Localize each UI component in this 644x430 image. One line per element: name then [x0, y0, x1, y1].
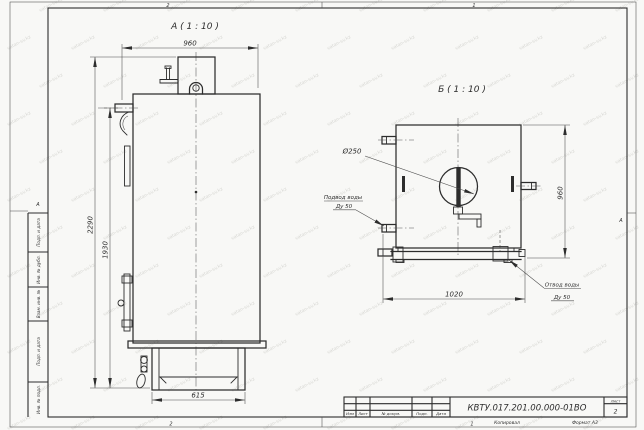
drawing-sheet: vatan-sv.kzvatan-sv.kzvatan-sv.kzvatan-s… [0, 0, 644, 430]
tb-col-podp: Подп. [416, 411, 428, 416]
svg-text:vatan-sv.kz: vatan-sv.kz [422, 224, 448, 242]
svg-text:vatan-sv.kz: vatan-sv.kz [486, 376, 512, 394]
svg-text:vatan-sv.kz: vatan-sv.kz [454, 262, 480, 280]
water-outlet-stub [493, 247, 508, 262]
svg-text:vatan-sv.kz: vatan-sv.kz [294, 148, 320, 166]
svg-text:Ду 50: Ду 50 [553, 295, 571, 301]
damper-handle [454, 207, 482, 227]
zone-letter-left: А [35, 202, 40, 208]
svg-text:vatan-sv.kz: vatan-sv.kz [70, 110, 96, 128]
svg-text:vatan-sv.kz: vatan-sv.kz [70, 338, 96, 356]
dim-a-base-width: 615 [152, 392, 245, 405]
svg-text:Подвод воды: Подвод воды [324, 195, 363, 201]
svg-text:vatan-sv.kz: vatan-sv.kz [230, 300, 256, 318]
svg-text:vatan-sv.kz: vatan-sv.kz [518, 34, 544, 52]
svg-text:vatan-sv.kz: vatan-sv.kz [550, 224, 576, 242]
view-b-label: Б ( 1 : 10 ) [438, 85, 486, 95]
dim-a-body-height: 1930 [101, 108, 118, 388]
inlet-callout: Подвод воды Ду 50 [324, 195, 384, 226]
svg-text:vatan-sv.kz: vatan-sv.kz [102, 72, 128, 90]
tb-sheet-label: Лист [610, 398, 621, 403]
svg-text:vatan-sv.kz: vatan-sv.kz [358, 224, 384, 242]
zone-number-top-left: 2 [166, 3, 169, 9]
copied-label: Копировал [494, 420, 520, 426]
side-cell-vzam-inv: Взам. инв. № [36, 289, 41, 318]
svg-text:vatan-sv.kz: vatan-sv.kz [102, 300, 128, 318]
svg-text:vatan-sv.kz: vatan-sv.kz [326, 262, 352, 280]
view-a-label: А ( 1 : 10 ) [170, 22, 219, 32]
side-cell-inv-podl: Инв. № подл. [36, 385, 41, 414]
tb-col-data: Дата [435, 411, 447, 416]
svg-text:vatan-sv.kz: vatan-sv.kz [166, 72, 192, 90]
svg-text:vatan-sv.kz: vatan-sv.kz [262, 262, 288, 280]
svg-text:vatan-sv.kz: vatan-sv.kz [230, 224, 256, 242]
svg-text:vatan-sv.kz: vatan-sv.kz [134, 414, 160, 430]
dim-a-overall-height: 2290 [87, 57, 177, 388]
svg-text:vatan-sv.kz: vatan-sv.kz [70, 34, 96, 52]
svg-text:vatan-sv.kz: vatan-sv.kz [70, 414, 96, 430]
svg-text:vatan-sv.kz: vatan-sv.kz [422, 300, 448, 318]
svg-text:vatan-sv.kz: vatan-sv.kz [262, 110, 288, 128]
svg-text:vatan-sv.kz: vatan-sv.kz [582, 110, 608, 128]
tb-col-list: Лист [357, 411, 368, 416]
document-number: КВТУ.017.201.00.000-01ВО [468, 404, 587, 414]
zone-number-bottom-left: 2 [169, 422, 172, 428]
svg-text:vatan-sv.kz: vatan-sv.kz [486, 300, 512, 318]
svg-text:vatan-sv.kz: vatan-sv.kz [486, 224, 512, 242]
flue-diameter-callout: Ø250 [342, 148, 474, 195]
svg-text:Ду 50: Ду 50 [335, 204, 353, 210]
svg-text:vatan-sv.kz: vatan-sv.kz [582, 34, 608, 52]
svg-text:Ø250: Ø250 [342, 148, 362, 156]
svg-text:615: 615 [191, 392, 205, 400]
svg-text:vatan-sv.kz: vatan-sv.kz [326, 110, 352, 128]
base-pedestal [128, 341, 266, 390]
zone-number-top-right: 1 [472, 3, 475, 9]
svg-text:vatan-sv.kz: vatan-sv.kz [582, 338, 608, 356]
svg-text:vatan-sv.kz: vatan-sv.kz [38, 300, 64, 318]
svg-text:vatan-sv.kz: vatan-sv.kz [102, 376, 128, 394]
svg-text:vatan-sv.kz: vatan-sv.kz [38, 72, 64, 90]
svg-text:vatan-sv.kz: vatan-sv.kz [134, 110, 160, 128]
svg-text:vatan-sv.kz: vatan-sv.kz [294, 300, 320, 318]
zone-letter-right: А [618, 218, 623, 224]
svg-text:vatan-sv.kz: vatan-sv.kz [198, 34, 224, 52]
side-cell-podp-data-2: Подп. и дата [36, 337, 41, 366]
svg-text:vatan-sv.kz: vatan-sv.kz [582, 186, 608, 204]
svg-text:1020: 1020 [445, 291, 463, 299]
svg-text:vatan-sv.kz: vatan-sv.kz [134, 186, 160, 204]
svg-text:vatan-sv.kz: vatan-sv.kz [38, 148, 64, 166]
svg-text:vatan-sv.kz: vatan-sv.kz [358, 376, 384, 394]
hinge-tick-left [402, 176, 405, 192]
svg-text:2290: 2290 [87, 216, 95, 234]
svg-text:vatan-sv.kz: vatan-sv.kz [262, 414, 288, 430]
svg-text:vatan-sv.kz: vatan-sv.kz [550, 376, 576, 394]
svg-text:vatan-sv.kz: vatan-sv.kz [326, 34, 352, 52]
tb-col-izm: Изм [346, 411, 354, 416]
svg-text:vatan-sv.kz: vatan-sv.kz [454, 338, 480, 356]
side-cell-podp-data-1: Подп. и дата [36, 218, 41, 247]
svg-text:960: 960 [183, 40, 197, 48]
svg-text:vatan-sv.kz: vatan-sv.kz [262, 186, 288, 204]
flue-pipe-bar [456, 168, 460, 208]
svg-text:vatan-sv.kz: vatan-sv.kz [198, 186, 224, 204]
svg-text:vatan-sv.kz: vatan-sv.kz [486, 72, 512, 90]
latch-handle [135, 356, 147, 389]
hinge-tick-right [511, 176, 514, 192]
svg-text:vatan-sv.kz: vatan-sv.kz [230, 148, 256, 166]
svg-text:vatan-sv.kz: vatan-sv.kz [294, 72, 320, 90]
svg-text:vatan-sv.kz: vatan-sv.kz [198, 414, 224, 430]
svg-text:vatan-sv.kz: vatan-sv.kz [550, 300, 576, 318]
svg-text:vatan-sv.kz: vatan-sv.kz [550, 72, 576, 90]
svg-text:vatan-sv.kz: vatan-sv.kz [486, 148, 512, 166]
rail-end-stub [378, 249, 392, 256]
svg-text:vatan-sv.kz: vatan-sv.kz [166, 376, 192, 394]
svg-text:vatan-sv.kz: vatan-sv.kz [326, 338, 352, 356]
svg-text:vatan-sv.kz: vatan-sv.kz [38, 224, 64, 242]
svg-text:vatan-sv.kz: vatan-sv.kz [294, 224, 320, 242]
svg-text:vatan-sv.kz: vatan-sv.kz [582, 262, 608, 280]
svg-text:vatan-sv.kz: vatan-sv.kz [294, 376, 320, 394]
svg-text:vatan-sv.kz: vatan-sv.kz [166, 148, 192, 166]
svg-text:vatan-sv.kz: vatan-sv.kz [358, 300, 384, 318]
format-label: Формат А3 [572, 420, 598, 426]
engineering-drawing: vatan-sv.kzvatan-sv.kzvatan-sv.kzvatan-s… [0, 0, 644, 430]
svg-text:vatan-sv.kz: vatan-sv.kz [230, 376, 256, 394]
zone-number-bottom-right: 1 [470, 422, 473, 428]
watermark-layer: vatan-sv.kzvatan-sv.kzvatan-sv.kzvatan-s… [0, 0, 644, 430]
dim-b-height: 960 [523, 125, 570, 258]
svg-text:vatan-sv.kz: vatan-sv.kz [326, 414, 352, 430]
svg-text:vatan-sv.kz: vatan-sv.kz [134, 34, 160, 52]
boiler-body [133, 94, 260, 343]
svg-text:1930: 1930 [101, 241, 109, 259]
svg-text:vatan-sv.kz: vatan-sv.kz [70, 186, 96, 204]
svg-text:vatan-sv.kz: vatan-sv.kz [70, 262, 96, 280]
svg-text:vatan-sv.kz: vatan-sv.kz [102, 224, 128, 242]
tb-col-docnum: № докум. [381, 411, 401, 416]
svg-text:vatan-sv.kz: vatan-sv.kz [166, 224, 192, 242]
outlet-callout: Отвод воды Ду 50 [509, 260, 581, 301]
svg-text:vatan-sv.kz: vatan-sv.kz [518, 262, 544, 280]
svg-text:vatan-sv.kz: vatan-sv.kz [390, 34, 416, 52]
svg-text:vatan-sv.kz: vatan-sv.kz [262, 34, 288, 52]
tb-sheet-number: 2 [614, 409, 618, 416]
rear-base-rail [378, 247, 525, 263]
sheet-frame [10, 2, 636, 427]
svg-text:vatan-sv.kz: vatan-sv.kz [390, 338, 416, 356]
svg-text:vatan-sv.kz: vatan-sv.kz [422, 148, 448, 166]
svg-text:Отвод воды: Отвод воды [545, 283, 580, 289]
svg-text:vatan-sv.kz: vatan-sv.kz [454, 34, 480, 52]
svg-text:vatan-sv.kz: vatan-sv.kz [390, 262, 416, 280]
stub-upper-left [378, 137, 414, 145]
svg-text:vatan-sv.kz: vatan-sv.kz [358, 72, 384, 90]
view-b-rear: Б ( 1 : 10 ) [324, 85, 581, 303]
svg-text:vatan-sv.kz: vatan-sv.kz [518, 414, 544, 430]
svg-text:vatan-sv.kz: vatan-sv.kz [454, 414, 480, 430]
svg-text:vatan-sv.kz: vatan-sv.kz [38, 376, 64, 394]
svg-text:960: 960 [556, 186, 564, 200]
svg-text:vatan-sv.kz: vatan-sv.kz [198, 262, 224, 280]
svg-text:vatan-sv.kz: vatan-sv.kz [198, 110, 224, 128]
svg-text:vatan-sv.kz: vatan-sv.kz [166, 300, 192, 318]
svg-text:vatan-sv.kz: vatan-sv.kz [358, 148, 384, 166]
svg-text:vatan-sv.kz: vatan-sv.kz [518, 338, 544, 356]
svg-text:vatan-sv.kz: vatan-sv.kz [134, 262, 160, 280]
center-mark [195, 191, 198, 194]
zone-markers: 2 1 2 1 А А [35, 3, 623, 428]
svg-text:vatan-sv.kz: vatan-sv.kz [422, 376, 448, 394]
title-block: Изм Лист № докум. Подп. Дата КВТУ.017.20… [344, 397, 627, 426]
svg-text:vatan-sv.kz: vatan-sv.kz [230, 72, 256, 90]
side-cell-inv-dubl: Инв. № дубл. [36, 255, 41, 284]
svg-text:vatan-sv.kz: vatan-sv.kz [550, 148, 576, 166]
